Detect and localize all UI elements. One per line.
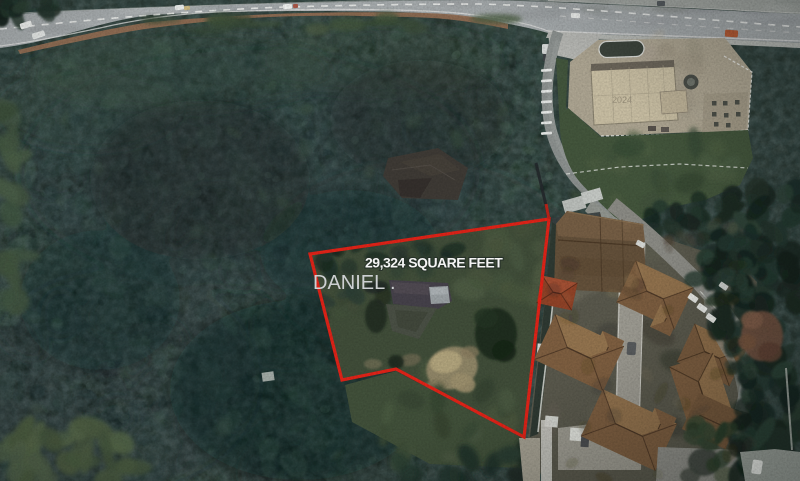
svg-text:29,324 SQUARE FEET: 29,324 SQUARE FEET [365,255,503,271]
svg-text:DANIEL .: DANIEL . [313,272,396,294]
